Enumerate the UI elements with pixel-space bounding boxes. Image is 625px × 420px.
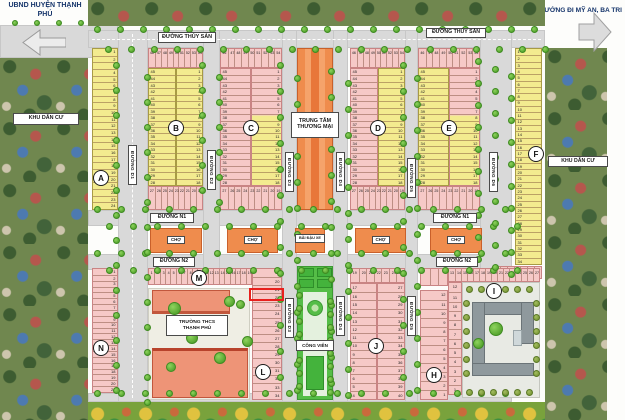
tree-icon (199, 187, 206, 194)
direction-arrow-east-icon (578, 12, 612, 52)
tree-icon (277, 348, 284, 355)
street-label-thuy-san-west: ĐƯỜNG THỦY SẢN (158, 32, 216, 43)
tree-icon (370, 26, 377, 33)
tree-icon (154, 223, 161, 230)
tree-icon (508, 205, 515, 212)
tree-icon (262, 390, 269, 397)
tree-icon (345, 184, 352, 191)
tree-icon (238, 250, 245, 257)
tree-icon (414, 127, 421, 134)
tree-icon (334, 206, 341, 213)
tree-icon (519, 46, 526, 53)
street-label-n1-west: ĐƯỜNG N1 (150, 213, 194, 223)
tree-icon (400, 322, 407, 329)
tree-icon (214, 352, 226, 364)
tree-icon (335, 46, 342, 53)
block-label-H: H (426, 367, 442, 383)
tree-icon (144, 199, 151, 206)
tree-icon (346, 223, 353, 230)
lot: 18 (252, 179, 281, 186)
tree-icon (56, 20, 62, 26)
tree-icon (400, 88, 407, 95)
block-label-I: I (486, 283, 502, 299)
tree-icon (327, 298, 334, 305)
tree-icon (345, 262, 352, 269)
park-plaza (306, 356, 324, 390)
tree-icon (140, 26, 147, 33)
street-label-n2-west: ĐƯỜNG N2 (153, 257, 195, 267)
tree-icon (312, 46, 319, 53)
tree-icon (496, 46, 503, 53)
tree-icon (358, 206, 365, 213)
tree-icon (277, 114, 284, 121)
block-label-A: A (93, 170, 109, 186)
road (405, 30, 418, 402)
street-label-d5-lower: ĐƯỜNG D5 (407, 296, 416, 336)
tree-icon (400, 296, 407, 303)
aerial-photo-right (545, 48, 607, 420)
tree-icon (508, 139, 515, 146)
block-label-J: J (368, 338, 384, 354)
aerial-photo-bottom (88, 402, 545, 420)
tree-icon (294, 75, 301, 82)
tree-icon (382, 250, 389, 257)
tree-icon (478, 389, 485, 396)
tree-icon (327, 376, 334, 383)
road (282, 30, 297, 402)
tree-icon (238, 390, 245, 397)
tree-icon (243, 46, 250, 53)
direction-arrow-west-icon (22, 29, 66, 56)
tree-icon (526, 286, 533, 293)
tree-icon (144, 99, 151, 106)
tree-icon (430, 390, 437, 397)
lot: 27 (221, 187, 228, 209)
tree-icon (226, 223, 233, 230)
tree-icon (154, 267, 161, 274)
tree-icon (475, 58, 482, 65)
tree-icon (400, 192, 407, 199)
tree-icon (113, 337, 120, 344)
tree-icon (113, 262, 120, 269)
tree-icon (490, 389, 497, 396)
tree-icon (430, 250, 437, 257)
tree-icon (105, 46, 112, 53)
tree-icon (414, 75, 421, 82)
tree-icon (526, 389, 533, 396)
tree-icon (113, 237, 120, 244)
tree-icon (508, 227, 515, 234)
tree-icon (381, 46, 388, 53)
tree-icon (216, 199, 223, 206)
tree-icon (533, 370, 540, 377)
tree-icon (400, 270, 407, 277)
tree-icon (322, 267, 329, 274)
tree-icon (328, 146, 335, 153)
tree-icon (310, 250, 317, 257)
tree-icon (345, 288, 352, 295)
parking-label: BÃI ĐẬU XE (295, 234, 325, 243)
tree-icon (492, 66, 499, 73)
tree-icon (502, 389, 509, 396)
tree-icon (345, 392, 352, 399)
block-label-D: D (370, 120, 386, 136)
tree-icon (400, 244, 407, 251)
tree-icon (345, 132, 352, 139)
street-label-d6: ĐƯỜNG D6 (489, 152, 498, 192)
lot: 28 (149, 179, 175, 186)
tree-icon (286, 250, 293, 257)
tree-icon (178, 223, 185, 230)
tree-icon (277, 88, 284, 95)
tree-icon (328, 68, 335, 75)
block-I-left: 121110987654321 (448, 282, 462, 395)
tree-icon (238, 206, 245, 213)
street-label-d3-lower: ĐƯỜNG D3 (285, 298, 294, 338)
tree-icon (286, 390, 293, 397)
block-label-E: E (441, 120, 457, 136)
block-label-L: L (255, 364, 271, 380)
market-label: CHỢ (167, 236, 185, 244)
tree-icon (214, 250, 221, 257)
tree-icon (414, 231, 421, 238)
tree-icon (294, 179, 301, 186)
tree-icon (327, 350, 334, 357)
tree-icon (393, 26, 400, 33)
site-plan-map: UBND HUYỆN THẠNH PHÚ HƯỚNG ĐI MỸ AN, BA … (0, 0, 625, 420)
tree-icon (277, 192, 284, 199)
street-label-d5-upper: ĐƯỜNG D5 (407, 158, 416, 198)
tree-icon (370, 223, 377, 230)
tree-icon (400, 166, 407, 173)
tree-icon (236, 300, 245, 309)
tree-icon (533, 314, 540, 321)
tree-icon (12, 20, 18, 26)
tree-icon (463, 356, 470, 363)
tree-icon (289, 46, 296, 53)
tree-icon (113, 362, 120, 369)
tree-icon (345, 314, 352, 321)
tree-icon (442, 267, 449, 274)
tree-icon (216, 74, 223, 81)
tree-icon (94, 390, 101, 397)
lot: 28 (351, 179, 377, 186)
tree-icon (450, 46, 457, 53)
lot: 17 (351, 284, 376, 292)
gray-building (521, 302, 534, 344)
tree-icon (492, 242, 499, 249)
tree-icon (277, 270, 284, 277)
tree-icon (277, 166, 284, 173)
tree-icon (216, 124, 223, 131)
tree-icon (216, 149, 223, 156)
tree-icon (242, 336, 253, 347)
road-centerline (132, 34, 133, 398)
tree-icon (144, 249, 151, 256)
tree-icon (328, 94, 335, 101)
tree-icon (296, 305, 303, 312)
tree-icon (166, 390, 173, 397)
residential-area-label-left: KHU DÂN CƯ (13, 113, 79, 125)
tree-icon (106, 223, 113, 230)
lot: 27 (378, 284, 404, 292)
tree-icon (463, 314, 470, 321)
street-label-d4-upper: ĐƯỜNG D4 (336, 152, 345, 192)
market-label: CHỢ (244, 236, 262, 244)
tree-icon (190, 206, 197, 213)
tree-icon (358, 390, 365, 397)
tree-icon (34, 20, 40, 26)
block-C-bottom: 272625242322212019 (220, 186, 282, 210)
tree-icon (277, 140, 284, 147)
tree-icon (199, 87, 206, 94)
tree-icon (414, 361, 421, 368)
tree-icon (475, 102, 482, 109)
tree-icon (298, 267, 305, 274)
tree-icon (294, 257, 301, 264)
tree-icon (216, 174, 223, 181)
tree-icon (454, 250, 461, 257)
street-label-n1-east: ĐƯỜNG N1 (433, 213, 477, 223)
tree-icon (144, 299, 151, 306)
tree-icon (277, 374, 284, 381)
lot: 18 (177, 179, 203, 186)
tree-icon (418, 223, 425, 230)
lot: 34 (516, 258, 541, 265)
tree-icon (216, 99, 223, 106)
tree-icon (328, 172, 335, 179)
tree-icon (94, 206, 101, 213)
gray-building (472, 363, 534, 376)
tree-icon (324, 26, 331, 33)
highlighted-lot (249, 288, 284, 301)
street-label-thuy-san-east: ĐƯỜNG THỦY SẢN (426, 28, 486, 38)
tree-icon (113, 87, 120, 94)
tree-icon (508, 271, 515, 278)
tree-icon (296, 292, 303, 299)
tree-icon (345, 210, 352, 217)
tree-icon (113, 312, 120, 319)
tree-icon (296, 383, 303, 390)
tree-icon (463, 300, 470, 307)
tree-icon (492, 88, 499, 95)
commercial-center-label: TRUNG TÂM THƯƠNG MẠI (291, 112, 339, 138)
tree-icon (508, 161, 515, 168)
tree-icon (113, 212, 120, 219)
tree-icon (296, 370, 303, 377)
top-left-title: UBND HUYỆN THẠNH PHÚ (2, 2, 88, 20)
tree-icon (250, 267, 257, 274)
tree-icon (220, 46, 227, 53)
tree-icon (463, 370, 470, 377)
tree-icon (178, 267, 185, 274)
tree-icon (533, 300, 540, 307)
tree-icon (113, 187, 120, 194)
tree-icon (489, 322, 503, 336)
tree-icon (328, 276, 335, 283)
tree-icon (278, 26, 285, 33)
tree-icon (294, 101, 301, 108)
tree-icon (118, 206, 125, 213)
tree-icon (294, 283, 301, 290)
tree-icon (358, 46, 365, 53)
tree-icon (277, 218, 284, 225)
tree-icon (400, 374, 407, 381)
street-label-d1: ĐƯỜNG D1 (128, 145, 137, 185)
tree-icon (542, 46, 549, 53)
block-label-B: B (168, 120, 184, 136)
tree-icon (255, 26, 262, 33)
tree-icon (508, 26, 515, 33)
tree-icon (414, 101, 421, 108)
tree-icon (473, 338, 484, 349)
tree-icon (166, 206, 173, 213)
tree-icon (334, 390, 341, 397)
tree-icon (454, 206, 461, 213)
tree-icon (301, 26, 308, 33)
tree-icon (492, 264, 499, 271)
tree-icon (473, 46, 480, 53)
tree-icon (327, 363, 334, 370)
tree-icon (418, 267, 425, 274)
market-label: CHỢ (372, 236, 390, 244)
tree-icon (296, 357, 303, 364)
tree-icon (508, 249, 515, 256)
tree-icon (328, 250, 335, 257)
tree-icon (78, 20, 84, 26)
tree-icon (475, 234, 482, 241)
tree-icon (128, 46, 135, 53)
tree-icon (492, 198, 499, 205)
tree-icon (466, 389, 473, 396)
block-label-M: M (191, 270, 207, 286)
tree-icon (298, 223, 305, 230)
tree-icon (327, 311, 334, 318)
tree-icon (414, 205, 421, 212)
tree-icon (414, 283, 421, 290)
tree-icon (358, 250, 365, 257)
tree-icon (394, 223, 401, 230)
tree-icon (475, 146, 482, 153)
tree-icon (345, 106, 352, 113)
tree-icon (492, 132, 499, 139)
tree-icon (347, 26, 354, 33)
tree-icon (334, 250, 341, 257)
tree-icon (345, 158, 352, 165)
tree-icon (144, 399, 151, 406)
tree-icon (142, 206, 149, 213)
tree-icon (144, 324, 151, 331)
lot: 27 (533, 269, 540, 281)
tree-icon (277, 322, 284, 329)
block-label-N: N (93, 340, 109, 356)
tree-icon (144, 124, 151, 131)
gray-building-annex (513, 330, 522, 346)
tree-icon (226, 267, 233, 274)
school-label-line2: THẠNH PHÚ (183, 326, 211, 331)
residential-area-label-right: KHU DÂN CƯ (548, 156, 608, 167)
tree-icon (130, 267, 137, 274)
tree-icon (214, 206, 221, 213)
tree-icon (94, 26, 101, 33)
tree-icon (533, 356, 540, 363)
tree-icon (277, 62, 284, 69)
tree-icon (502, 286, 509, 293)
tree-icon (294, 153, 301, 160)
tree-icon (414, 257, 421, 264)
lot: 28 (419, 179, 448, 186)
road (118, 30, 148, 402)
tree-icon (113, 112, 120, 119)
tree-icon (166, 362, 176, 372)
tree-icon (294, 205, 301, 212)
tree-icon (144, 149, 151, 156)
tree-icon (250, 223, 257, 230)
tree-icon (531, 26, 538, 33)
tree-icon (113, 62, 120, 69)
tree-icon (142, 390, 149, 397)
tree-icon (382, 390, 389, 397)
tree-icon (508, 117, 515, 124)
tree-icon (400, 348, 407, 355)
tree-icon (144, 224, 151, 231)
tree-icon (463, 342, 470, 349)
tree-icon (174, 46, 181, 53)
tree-icon (404, 46, 411, 53)
tree-icon (442, 223, 449, 230)
tree-icon (224, 296, 235, 307)
tree-icon (508, 73, 515, 80)
tree-icon (475, 168, 482, 175)
tree-icon (430, 206, 437, 213)
tree-icon (533, 342, 540, 349)
lot: 12 (421, 291, 447, 300)
tree-icon (113, 287, 120, 294)
tree-icon (286, 206, 293, 213)
street-label-n2-east: ĐƯỜNG N2 (436, 257, 478, 267)
tree-icon (144, 349, 151, 356)
tree-icon (199, 112, 206, 119)
park-label: CÔNG VIÊN (296, 340, 334, 351)
tree-icon (310, 206, 317, 213)
tree-icon (199, 162, 206, 169)
tree-icon (345, 366, 352, 373)
tree-icon (406, 250, 413, 257)
tree-icon (106, 267, 113, 274)
tree-icon (345, 340, 352, 347)
tree-icon (382, 206, 389, 213)
tree-icon (144, 74, 151, 81)
market-label: CHỢ (447, 236, 465, 244)
tree-icon (232, 26, 239, 33)
lot: 28 (221, 179, 250, 186)
lot: 46 (419, 49, 426, 67)
block-A: 123456789101112131415161718192021222324 (92, 48, 118, 210)
tree-icon (94, 250, 101, 257)
tree-icon (475, 190, 482, 197)
tree-icon (113, 137, 120, 144)
tree-icon (144, 174, 151, 181)
tree-icon (328, 198, 335, 205)
tree-icon (406, 206, 413, 213)
tree-icon (262, 206, 269, 213)
tree-icon (199, 62, 206, 69)
tree-icon (492, 110, 499, 117)
block-E-bottom: 272625242322212019 (418, 186, 480, 210)
tree-icon (514, 286, 521, 293)
street-label-d2: ĐƯỜNG D2 (207, 150, 216, 190)
tree-icon (514, 267, 521, 274)
